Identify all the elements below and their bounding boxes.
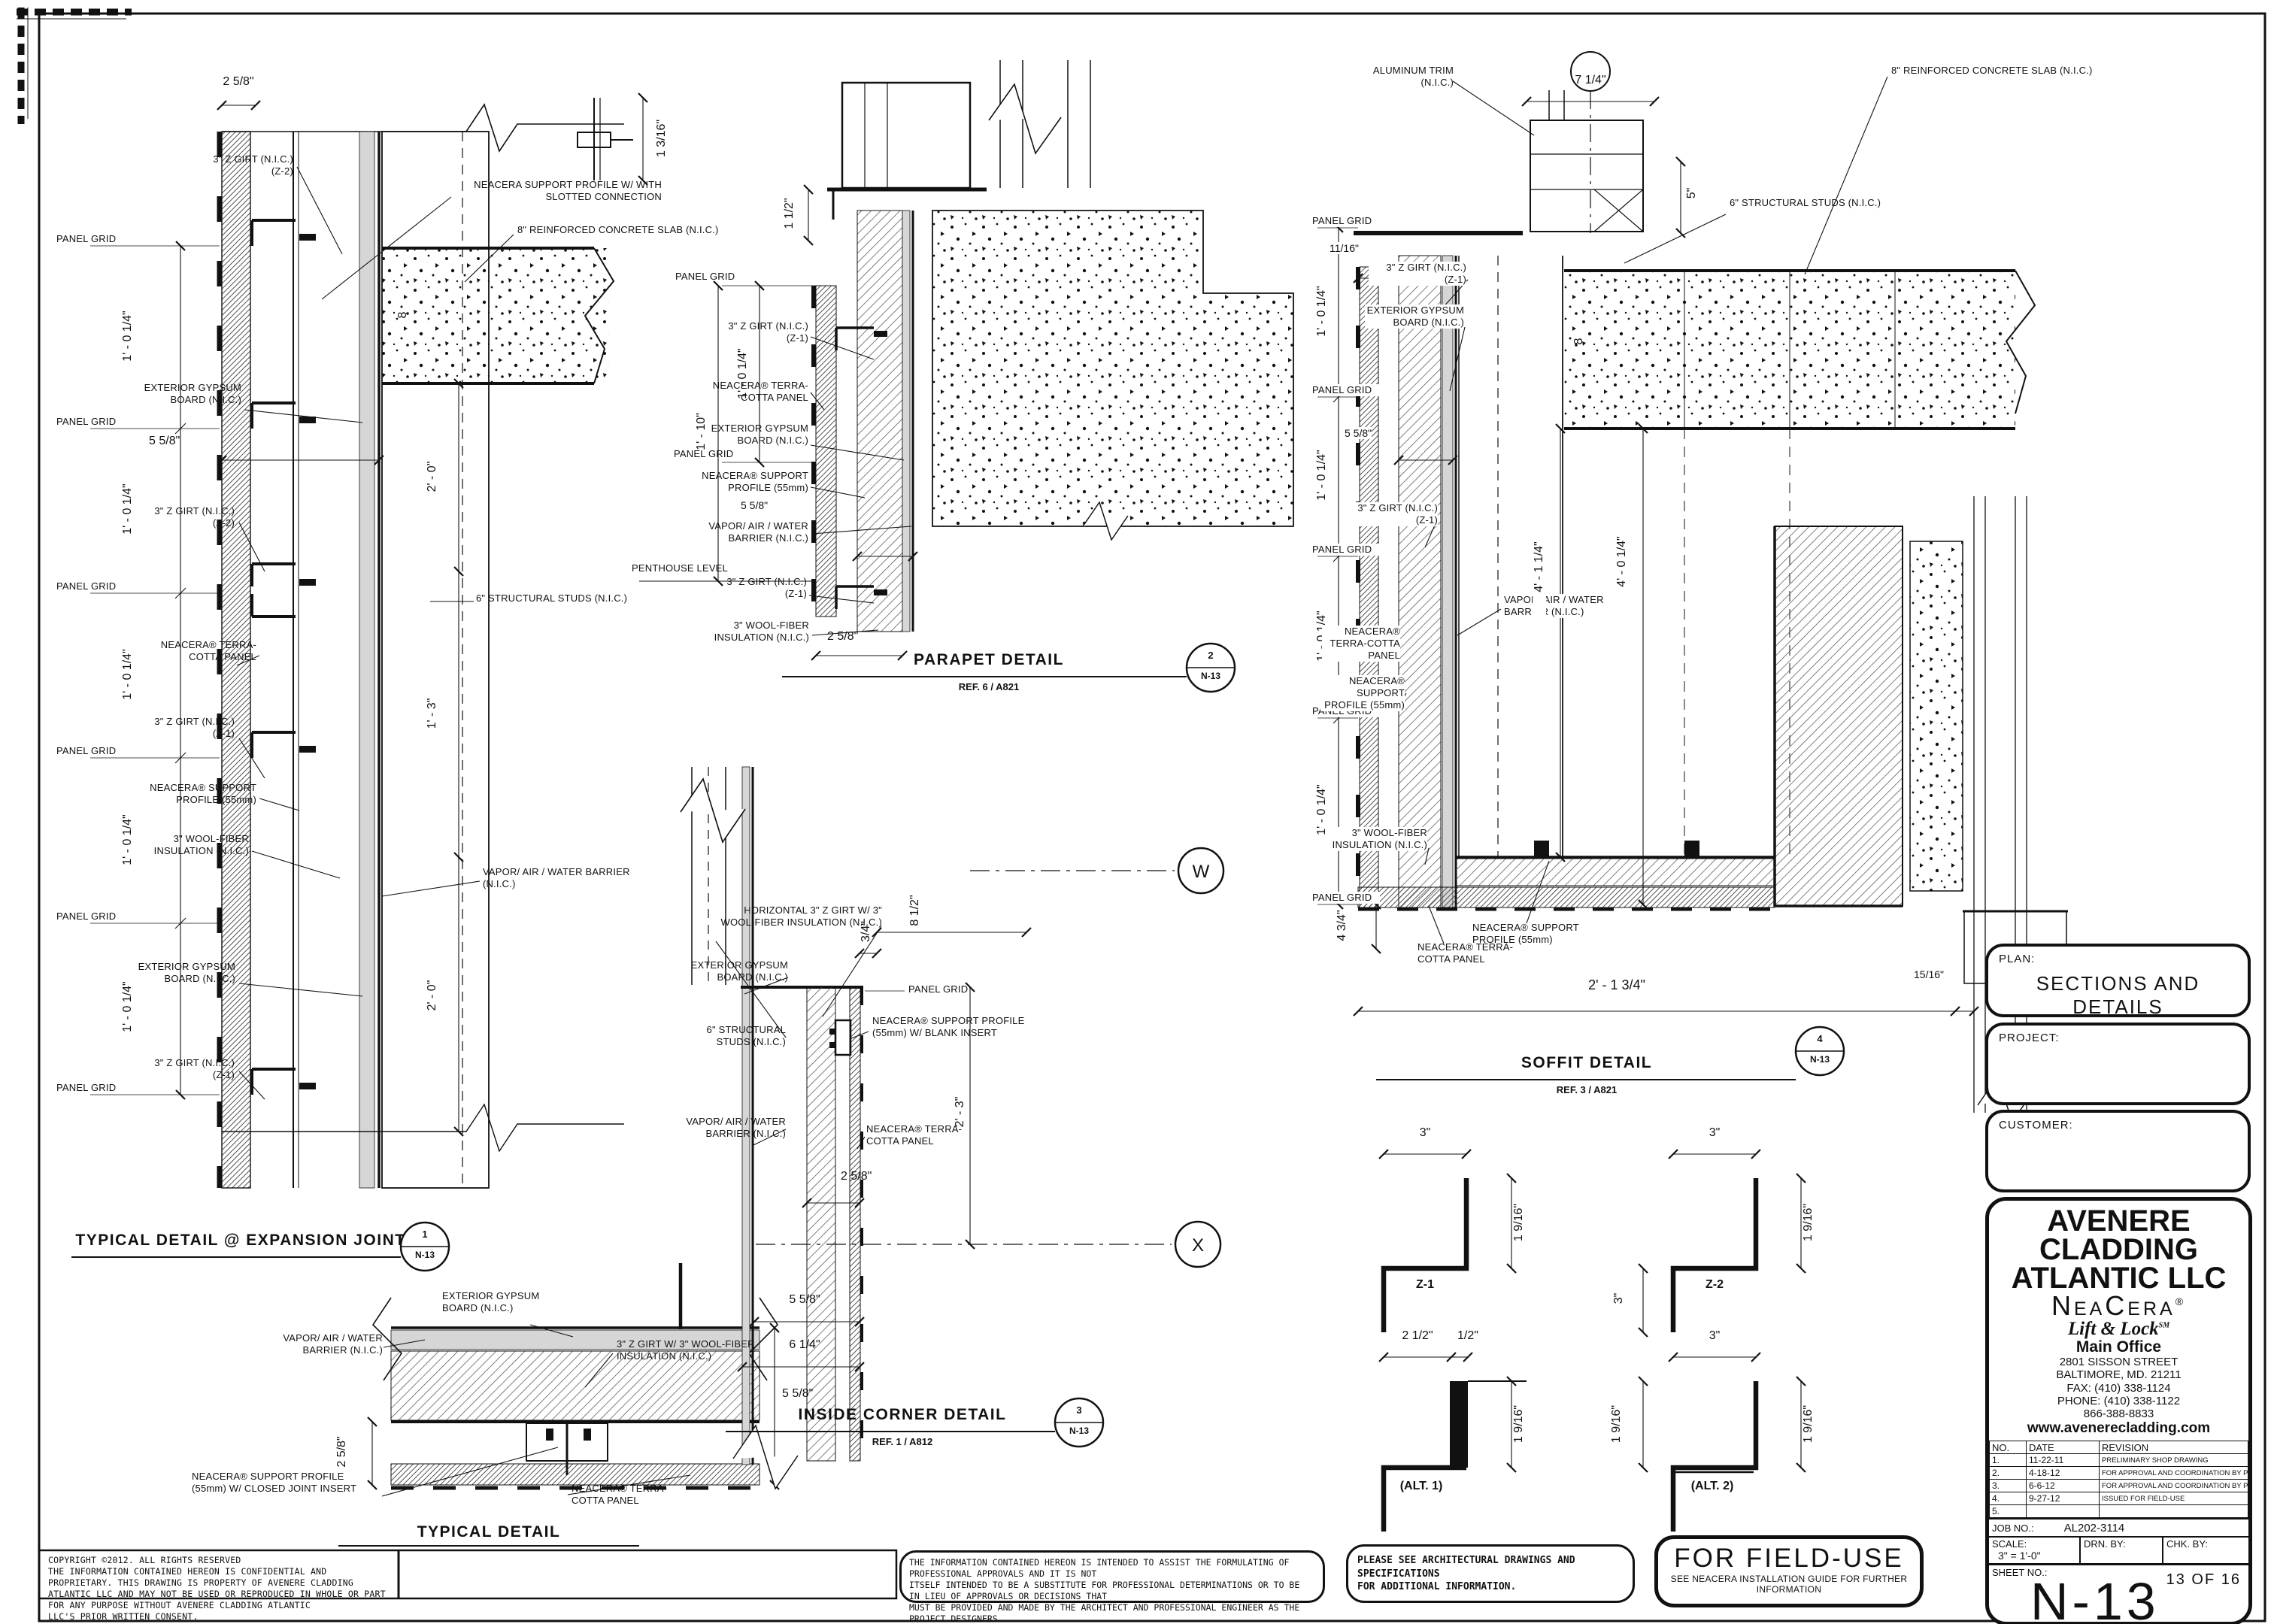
project-box: PROJECT: [1985,1023,2251,1105]
cor-title: INSIDE CORNER DETAIL [767,1406,1038,1424]
cor-callout-sheet: N-13 [1058,1426,1100,1436]
sof-callout-sheet: N-13 [1799,1054,1841,1065]
cor-grid-w: W [1186,862,1216,883]
company-name-3: ATLANTIC LLC [1989,1264,2248,1292]
brand-logo: NeaCera® [1989,1292,2248,1319]
alt2-left-dim: 1 9/16" [1610,1390,1624,1458]
z-girt-profiles-drawing [1384,1154,1801,1532]
sof-zgirt-2: 3" Z GIRT (N.I.C.)(Z-1) [1346,502,1438,526]
d1-slotted-label: NEACERA SUPPORT PROFILE W/ WITH SLOTTED … [451,179,662,203]
par-panel-grid-1: PANEL GRID [675,271,743,283]
d1-panel-grid-2: PANEL GRID [56,416,139,428]
sof-extgyp-label: EXTERIOR GYPSUM BOARD (N.I.C.) [1365,304,1464,329]
typ-terra-label: NEACERA® TERRA-COTTA PANEL [572,1483,699,1507]
sof-zgirt-1: 3" Z GIRT (N.I.C.)(Z-1) [1369,262,1466,286]
drawing-sheet: 3" Z GIRT (N.I.C.)(Z-2) NEACERA SUPPORT … [0,0,2274,1624]
chk-by-label: CHK. BY: [2163,1538,2248,1563]
par-dim-258: 2 5/8" [827,630,858,644]
revision-row-5: 5. [1990,1505,2248,1518]
sof-dim-4114: 4' - 1 1/4" [1533,518,1546,616]
drn-by-label: DRN. BY: [2081,1538,2163,1563]
d1-panel-grid-3: PANEL GRID [56,580,139,592]
cor-horizgirt-label: HORIZONTAL 3" Z GIRT W/ 3" WOOL-FIBER IN… [720,904,882,929]
cor-terra-label: NEACERA® TERRA-COTTA PANEL [866,1123,990,1147]
sheet-number: N-13 [2030,1571,2160,1624]
typical-detail-drawing [338,1263,778,1546]
typ-girtwool-label: 3" Z GIRT W/ 3" WOOL-FIBER INSULATION (N… [617,1338,775,1362]
d1-panel-grid-5: PANEL GRID [56,910,139,923]
plan-title: SECTIONS AND DETAILS [1988,972,2248,1019]
office-label: Main Office [1989,1338,2248,1356]
sof-dim-1014-4: 1' - 0 1/4" [1315,765,1329,855]
tollfree-number: 866-388-8833 [1989,1407,2248,1420]
sof-alum-label: ALUMINUM TRIM (N.I.C.) [1350,65,1454,89]
revision-row-3: 3.6-6-12 FOR APPROVAL AND COORDINATION B… [1990,1480,2248,1492]
sof-vapor-label: VAPOR/ AIR / WATER BARRIER (N.I.C.) [1504,594,1613,618]
par-title: PARAPET DETAIL [861,651,1117,669]
revision-row-1: 1.11-22-11 PRELIMINARY SHOP DRAWING [1990,1454,2248,1467]
cor-dim-258: 2 5/8" [841,1170,872,1183]
professional-note: THE INFORMATION CONTAINED HEREON IS INTE… [902,1553,1323,1624]
z2-name: Z-2 [1684,1278,1745,1292]
revision-table: NO. DATE REVISION 1.11-22-11 PRELIMINARY… [1989,1441,2248,1518]
customer-label: CUSTOMER: [1999,1119,2073,1132]
sof-dim-2134: 2' - 1 3/4" [1549,977,1684,993]
d1-title: TYPICAL DETAIL @ EXPANSION JOINT [75,1232,406,1250]
sof-dim-1516: 15/16" [1914,968,1944,980]
sof-panel-grid-3: PANEL GRID [1312,544,1380,556]
cor-grid-x: X [1183,1235,1213,1256]
cor-studs-label: 6" STRUCTURAL STUDS (N.I.C.) [679,1024,786,1048]
cor-panel-grid: PANEL GRID [908,983,984,995]
alt1-side-dim: 1 9/16" [1512,1390,1526,1458]
z1-name: Z-1 [1395,1278,1455,1292]
d1-dim-13: 1' - 3" [426,672,439,755]
d1-dim-1014-1: 1' - 0 1/4" [121,291,135,381]
d1-studs-label: 6" STRUCTURAL STUDS (N.I.C.) [476,592,672,604]
par-vapor-label: VAPOR/ AIR / WATER BARRIER (N.I.C.) [696,520,808,544]
d1-dim-1014-3: 1' - 0 1/4" [121,629,135,720]
company-box: AVENERE CLADDING ATLANTIC LLC NeaCera® L… [1985,1197,2252,1624]
field-use-title: FOR FIELD-USE [1658,1544,1920,1574]
project-label: PROJECT: [1999,1032,2060,1044]
cor-dim-23: 2' - 3" [954,1071,967,1153]
d1-callout-sheet: N-13 [404,1250,446,1260]
d1-zgirt-z1b-label: 3" Z GIRT (N.I.C.)(Z-1) [128,1057,235,1081]
z2-top-dim: 3" [1673,1126,1756,1140]
job-number: AL202-3114 [2034,1522,2125,1535]
d1-dim-20-2: 2' - 0" [426,954,439,1037]
par-zgirt-2: 3" Z GIRT (N.I.C.)(Z-1) [713,576,807,600]
sof-title: SOFFIT DETAIL [1463,1054,1711,1072]
par-extgyp-label: EXTERIOR GYPSUM BOARD (N.I.C.) [707,423,808,447]
phone-number: PHONE: (410) 338-1122 [1989,1395,2248,1407]
revision-header-row: NO. DATE REVISION [1990,1441,2248,1454]
sof-callout-num: 4 [1805,1033,1835,1044]
website: www.avenerecladding.com [1989,1420,2248,1438]
customer-box: CUSTOMER: [1985,1110,2251,1192]
job-label: JOB NO.: [1989,1522,2034,1534]
alt1-top1-dim: 2 1/2" [1380,1329,1455,1343]
sof-dim-434: 4 3/4" [1336,892,1349,959]
sof-dim-558: 5 5/8" [1345,427,1372,439]
z1-side-dim: 1 9/16" [1512,1189,1526,1256]
d1-dim-20-1: 2' - 0" [426,435,439,518]
cor-callout-num: 3 [1064,1404,1094,1416]
z2-left-dim: 3" [1612,1268,1626,1329]
d1-zgirt-z2b-label: 3" Z GIRT (N.I.C.)(Z-2) [128,505,235,529]
address-street: 2801 SISSON STREET [1989,1356,2248,1368]
d1-support55-label: NEACERA® SUPPORT PROFILE (55mm) [129,782,256,806]
cor-dim-812: 8 1/2" [908,877,922,944]
revision-row-2: 2.4-18-12 FOR APPROVAL AND COORDINATION … [1990,1467,2248,1480]
sof-panel-grid-2: PANEL GRID [1312,384,1380,396]
fax-number: FAX: (410) 338-1124 [1989,1382,2248,1395]
scale-row: SCALE: 3" = 1'-0" DRN. BY: CHK. BY: [1989,1536,2248,1563]
cor-support-blank-label: NEACERA® SUPPORT PROFILE (55mm) W/ BLANK… [872,1015,1049,1039]
par-support55-label: NEACERA® SUPPORT PROFILE (55mm) [696,470,808,494]
professional-note-box: THE INFORMATION CONTAINED HEREON IS INTE… [899,1550,1325,1603]
cor-dim-558: 5 5/8" [756,1293,854,1307]
alt2-name: (ALT. 2) [1671,1480,1754,1493]
sof-support55-2: NEACERA® SUPPORT PROFILE (55mm) [1472,922,1591,946]
d1-zgirt-z1-label: 3" Z GIRT (N.I.C.)(Z-1) [128,716,235,740]
d1-wool-label: 3" WOOL-FIBER INSULATION (N.I.C.) [117,833,249,857]
cor-vapor-label: VAPOR/ AIR / WATER BARRIER (N.I.C.) [672,1116,786,1140]
sof-ref: REF. 3 / A821 [1493,1084,1681,1095]
par-dim-558: 5 5/8" [741,499,768,511]
d1-extgyp-2: EXTERIOR GYPSUM BOARD (N.I.C.) [129,961,235,985]
typ-dim-258: 2 5/8" [335,1410,349,1493]
d1-extgyp-1: EXTERIOR GYPSUM BOARD (N.I.C.) [132,382,241,406]
sof-dim-714: 7 1/4" [1545,74,1636,87]
sof-terra-1: NEACERA® TERRA-COTTA PANEL [1322,626,1400,662]
typ-title: TYPICAL DETAIL [376,1523,602,1541]
cor-ref: REF. 1 / A812 [797,1436,1008,1447]
cor-extgyp-label: EXTERIOR GYPSUM BOARD (N.I.C.) [677,959,788,983]
sof-dim-1014-2: 1' - 0 1/4" [1315,430,1329,520]
cor-dim-614: 6 1/4" [756,1338,854,1352]
cor-dim-34: 3/4" [860,901,873,962]
typ-dim-558: 5 5/8" [782,1387,813,1401]
par-wool-label: 3" WOOL-FIBER INSULATION (N.I.C.) [704,620,809,644]
plan-label: PLAN: [1999,953,2035,965]
alt1-top2-dim: 1/2" [1445,1329,1490,1343]
scale-value: 3" = 1'-0" [1992,1550,2076,1562]
sheet-row: SHEET NO.: N-13 13 OF 16 [1989,1563,2248,1624]
company-name-2: CLADDING [1989,1235,2248,1264]
expansion-joint-drawing [71,98,643,1271]
d1-dim-1316: 1 3/16" [655,101,669,176]
page-count: 13 OF 16 [2166,1571,2241,1589]
copyright-note: COPYRIGHT ©2012. ALL RIGHTS RESERVED THE… [48,1555,387,1622]
z2-side-dim: 1 9/16" [1802,1189,1815,1256]
d1-slab-label: 8" REINFORCED CONCRETE SLAB (N.I.C.) [517,224,766,236]
d1-panel-grid-6: PANEL GRID [56,1082,139,1094]
typ-vapor-label: VAPOR/ AIR / WATER BARRIER (N.I.C.) [256,1332,383,1356]
address-city: BALTIMORE, MD. 21211 [1989,1368,2248,1381]
scale-label: SCALE: [1992,1538,2076,1550]
d1-panel-grid-4: PANEL GRID [56,745,139,757]
alt1-name: (ALT. 1) [1380,1480,1463,1493]
d1-zgirt-z2-label: 3" Z GIRT (N.I.C.)(Z-2) [124,153,293,177]
par-dim-112: 1 1/2" [783,172,796,255]
d1-slab-8: 8 [396,285,410,345]
par-ref: REF. 6 / A821 [884,681,1094,692]
sof-slab-label: 8" REINFORCED CONCRETE SLAB (N.I.C.) [1891,65,2147,77]
revision-row-4: 4.9-27-12 ISSUED FOR FIELD-USE [1990,1492,2248,1505]
brand-reg-mark: ® [2175,1295,2186,1307]
d1-panel-grid-1: PANEL GRID [56,233,139,245]
tagline-sm-mark: SM [2159,1322,2169,1330]
sof-panel-grid-1: PANEL GRID [1312,215,1380,227]
par-penthouse-label: PENTHOUSE LEVEL [632,562,752,574]
par-terra-label: NEACERA® TERRA-COTTA PANEL [699,380,808,404]
field-use-box: FOR FIELD-USE SEE NEACERA INSTALLATION G… [1654,1535,1924,1607]
sof-dim-1116: 11/16" [1330,242,1359,254]
sof-support55-1: NEACERA® SUPPORT PROFILE (55mm) [1320,675,1405,711]
sof-studs-label: 6" STRUCTURAL STUDS (N.I.C.) [1730,197,1918,209]
sof-dim-4014: 4' - 0 1/4" [1615,513,1629,611]
field-use-subtitle: SEE NEACERA INSTALLATION GUIDE FOR FURTH… [1658,1574,1920,1595]
d1-vapor-label: VAPOR/ AIR / WATER BARRIER (N.I.C.) [483,866,633,890]
alt2-top-dim: 3" [1673,1329,1756,1343]
sof-dim-5: 5" [1685,167,1699,220]
typ-extgyp-label: EXTERIOR GYPSUM BOARD (N.I.C.) [442,1290,540,1314]
brand-tagline: Lift & LockSM [1989,1319,2248,1338]
sof-dim-1014-1: 1' - 0 1/4" [1315,266,1329,356]
par-callout-sheet: N-13 [1190,671,1232,681]
d1-terra-label: NEACERA® TERRA-COTTA PANEL [139,639,256,663]
sof-wool-label: 3" WOOL-FIBER INSULATION (N.I.C.) [1331,827,1427,851]
see-arch-box: PLEASE SEE ARCHITECTURAL DRAWINGS AND SP… [1346,1544,1635,1603]
z1-top-dim: 3" [1384,1126,1466,1140]
par-zgirt-1: 3" Z GIRT (N.I.C.)(Z-1) [711,320,808,344]
plan-box: PLAN: SECTIONS AND DETAILS [1985,944,2251,1017]
sof-slab-8: 8 [1572,311,1586,371]
see-arch-note: PLEASE SEE ARCHITECTURAL DRAWINGS AND SP… [1348,1547,1633,1601]
company-name-1: AVENERE [1989,1207,2248,1235]
d1-dim-558: 5 5/8" [149,435,180,448]
drawing-linework [0,0,2274,1624]
alt2-side-dim: 1 9/16" [1802,1390,1815,1458]
job-row: JOB NO.: AL202-3114 [1989,1518,2248,1536]
d1-dim-258: 2 5/8" [197,75,280,89]
par-callout-num: 2 [1196,650,1226,661]
d1-callout-num: 1 [410,1229,440,1240]
